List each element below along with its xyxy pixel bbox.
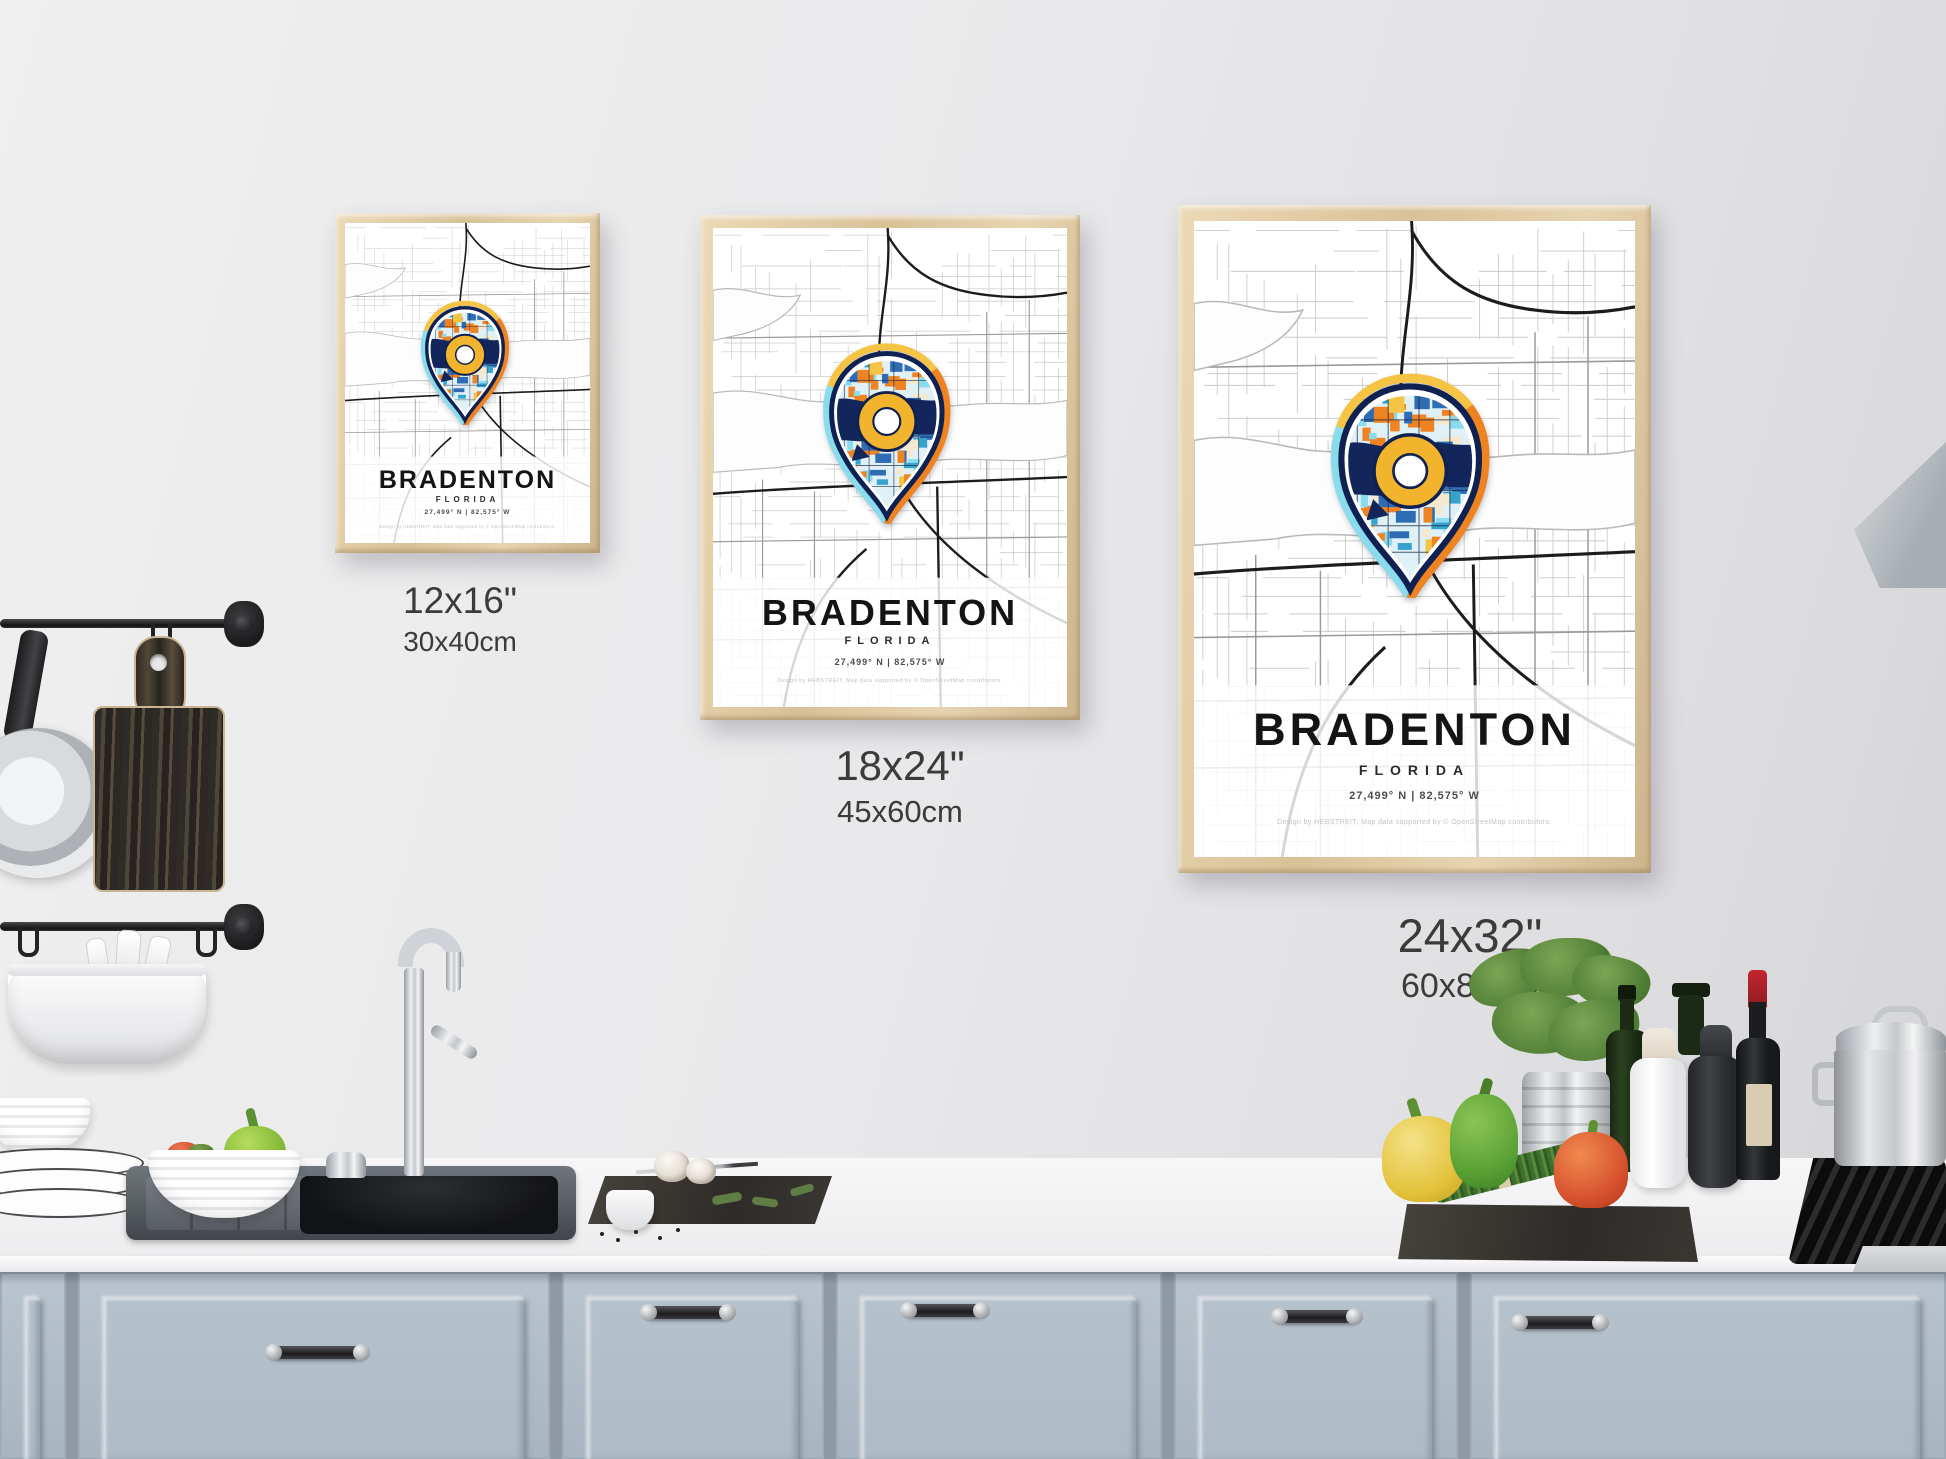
faucet	[404, 968, 424, 1176]
cutting-board	[93, 706, 225, 892]
cabinet-door	[562, 1272, 824, 1459]
location-pin	[1322, 367, 1498, 598]
chives-board	[1398, 1204, 1698, 1262]
cabinet-door	[78, 1272, 550, 1459]
sink-basin	[300, 1176, 558, 1234]
stock-pot	[1834, 1050, 1946, 1166]
region-label: FLORIDA	[713, 635, 1067, 647]
peppercorn	[616, 1238, 620, 1242]
city-title: BRADENTON	[345, 466, 590, 495]
drawer-handle	[1516, 1316, 1604, 1329]
garlic-bulb	[654, 1150, 690, 1182]
region-label: FLORIDA	[1194, 762, 1635, 778]
drawer-handle	[905, 1304, 985, 1317]
soap-dispenser	[326, 1152, 366, 1178]
kitchen-mockup-scene: BRADENTON FLORIDA 27,499° N | 82,575° W …	[0, 0, 1946, 1459]
salt-grinder	[1630, 1058, 1686, 1188]
cutting-board-hole	[150, 654, 167, 671]
cabinet-door	[0, 1272, 66, 1459]
cabinet-door	[1174, 1272, 1458, 1459]
frying-pan-handle	[2, 628, 49, 743]
cabinet-door	[1470, 1272, 1946, 1459]
size-cm: 45x60cm	[790, 794, 1010, 830]
counter-shadow	[0, 1272, 1946, 1284]
bell-pepper-red	[1554, 1132, 1628, 1208]
size-inches: 18x24"	[790, 742, 1010, 790]
door-panel	[26, 1298, 40, 1459]
size-label-small: 12x16" 30x40cm	[350, 580, 570, 658]
poster-small-paper: BRADENTON FLORIDA 27,499° N | 82,575° W …	[345, 223, 590, 543]
size-label-medium: 18x24" 45x60cm	[790, 742, 1010, 830]
door-panel	[862, 1298, 1136, 1459]
poster-large: BRADENTON FLORIDA 27,499° N | 82,575° W …	[1178, 205, 1651, 873]
mortar-cup	[606, 1190, 654, 1230]
wine-label	[1746, 1084, 1772, 1146]
city-title: BRADENTON	[1194, 704, 1635, 756]
drawer-handle	[645, 1306, 731, 1319]
cabinet-door	[836, 1272, 1162, 1459]
range-hood	[1854, 442, 1946, 588]
location-pin	[416, 297, 514, 425]
coordinates-label: 27,499° N | 82,575° W	[1194, 790, 1635, 802]
bucket-hook-icon	[18, 927, 39, 957]
bell-pepper-green	[1450, 1094, 1518, 1188]
credit-label: Design by HEBSTREIT. Map data supported …	[713, 678, 1067, 684]
city-title: BRADENTON	[713, 592, 1067, 634]
rail-mount-icon	[224, 904, 264, 950]
bucket-rim	[8, 964, 206, 976]
location-pin	[816, 338, 958, 523]
door-panel	[104, 1298, 524, 1459]
poster-small: BRADENTON FLORIDA 27,499° N | 82,575° W …	[335, 213, 600, 553]
pepper-grinder	[1688, 1056, 1742, 1188]
garlic-bulb	[686, 1158, 716, 1184]
utensil-bucket	[8, 964, 206, 1064]
rail-mount-icon	[224, 601, 264, 647]
poster-medium: BRADENTON FLORIDA 27,499° N | 82,575° W …	[700, 215, 1080, 720]
drawer-handle	[1276, 1310, 1358, 1323]
region-label: FLORIDA	[345, 495, 590, 504]
peppercorn	[658, 1236, 662, 1240]
size-cm: 30x40cm	[350, 626, 570, 658]
peppercorn	[676, 1228, 680, 1232]
bucket-hook-icon	[196, 927, 217, 957]
peppercorn	[634, 1230, 638, 1234]
credit-label: Design by HEBSTREIT. Map data supported …	[1194, 819, 1635, 826]
wall-rail-upper	[0, 619, 258, 628]
poster-large-paper: BRADENTON FLORIDA 27,499° N | 82,575° W …	[1194, 221, 1635, 857]
peppercorn	[600, 1232, 604, 1236]
faucet-spout	[446, 952, 461, 992]
faucet-lever	[429, 1023, 479, 1061]
stacked-bowl	[0, 1098, 90, 1154]
poster-medium-paper: BRADENTON FLORIDA 27,499° N | 82,575° W …	[713, 228, 1067, 707]
credit-label: Design by HEBSTREIT. Map data supported …	[345, 524, 590, 529]
coordinates-label: 27,499° N | 82,575° W	[713, 657, 1067, 667]
size-inches: 12x16"	[350, 580, 570, 622]
drawer-handle	[270, 1346, 365, 1359]
coordinates-label: 27,499° N | 82,575° W	[345, 509, 590, 516]
door-panel	[588, 1298, 798, 1459]
cabinet-row	[0, 1272, 1946, 1459]
